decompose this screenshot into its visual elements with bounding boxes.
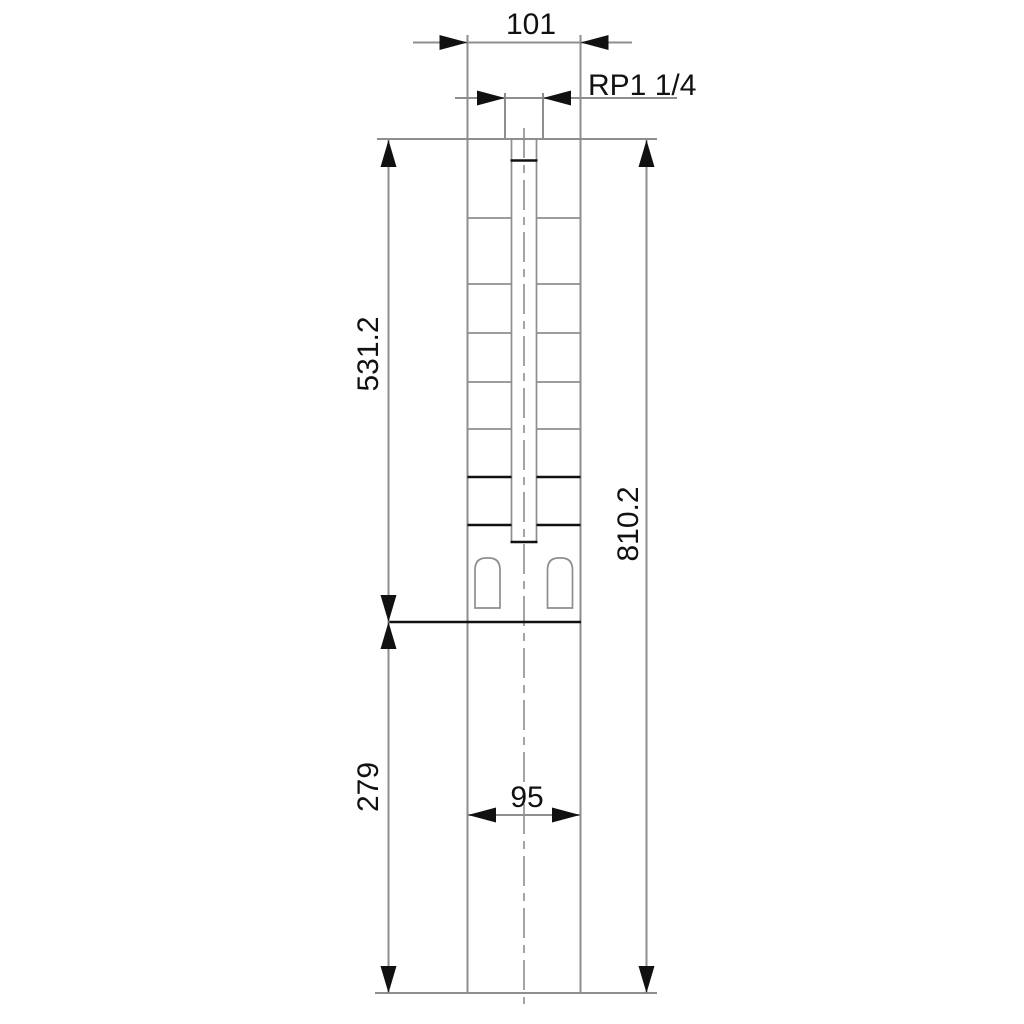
dim-arrow-icon	[477, 91, 505, 106]
dimension-thread: RP1 1/4	[455, 69, 696, 106]
dim-arrow-icon	[639, 140, 655, 167]
dimension-total-length: 810.2	[612, 140, 655, 993]
dim-arrow-icon	[581, 35, 609, 50]
dim-arrow-icon	[468, 808, 496, 823]
dimension-label-total-length: 810.2	[612, 486, 645, 561]
dimension-label-motor-length: 279	[352, 762, 385, 812]
suction-slot-left	[475, 558, 500, 608]
dimension-label-motor-width: 95	[510, 781, 543, 814]
dim-arrow-icon	[639, 966, 655, 993]
dimension-label-top-width: 101	[506, 8, 556, 41]
dim-arrow-icon	[552, 808, 580, 823]
suction-slot-right	[548, 558, 573, 608]
dim-arrow-icon	[381, 140, 397, 167]
drawing-page: 101 RP1 1/4 531.2 279 810.2 95	[0, 0, 1024, 1024]
dim-arrow-icon	[543, 91, 571, 106]
dimension-left-column: 531.2 279	[352, 140, 397, 993]
dimension-label-thread: RP1 1/4	[588, 69, 696, 102]
dim-arrow-icon	[381, 595, 397, 622]
dimension-label-pump-length: 531.2	[352, 316, 385, 391]
dim-arrow-icon	[440, 35, 468, 50]
pump-outline	[389, 93, 582, 993]
dim-arrow-icon	[381, 966, 397, 993]
dim-arrow-icon	[381, 622, 397, 649]
pump-dimension-drawing: 101 RP1 1/4 531.2 279 810.2 95	[0, 0, 1024, 1024]
dimension-top-width: 101	[413, 8, 632, 50]
